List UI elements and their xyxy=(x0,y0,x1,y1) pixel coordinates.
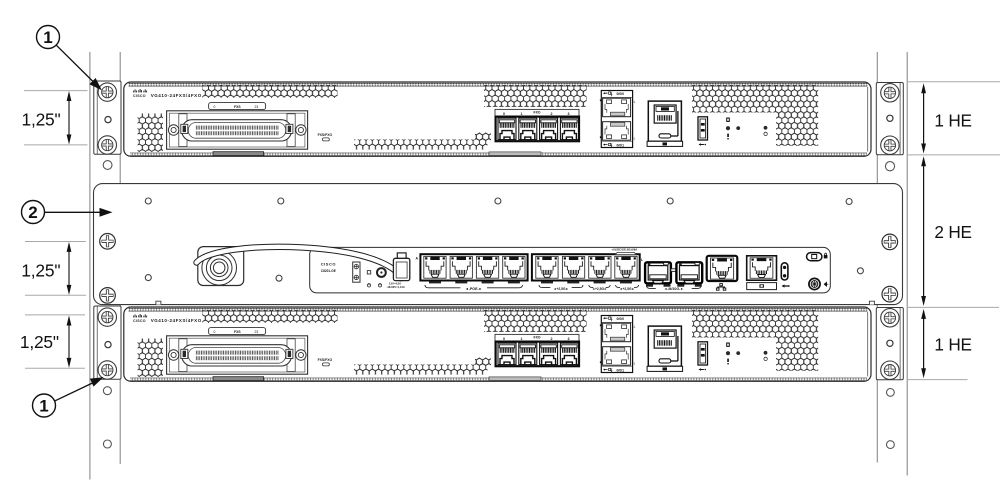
svg-text:L: L xyxy=(641,258,643,262)
svg-text:◄-POE-►: ◄-POE-► xyxy=(465,287,482,291)
svg-text:1,25": 1,25" xyxy=(21,260,60,280)
svg-text:◄+2,5G►: ◄+2,5G► xyxy=(619,287,635,291)
svg-text:-48-60V=1,13A: -48-60V=1,13A xyxy=(387,285,405,289)
svg-text:1,25": 1,25" xyxy=(20,332,59,352)
svg-text:1 HE: 1 HE xyxy=(934,335,971,355)
svg-text:C8201-GE: C8201-GE xyxy=(321,269,336,273)
svg-text:1 HE: 1 HE xyxy=(934,110,971,130)
svg-text:12V=4,5A: 12V=4,5A xyxy=(389,281,401,285)
svg-text:◄+2,5G►: ◄+2,5G► xyxy=(553,287,569,291)
svg-text:2 HE: 2 HE xyxy=(934,222,971,242)
svg-text:1,25": 1,25" xyxy=(21,109,60,129)
svg-text:+5V,DC/GE,0/5,0/6A: +5V,DC/GE,0/5,0/6A xyxy=(612,247,638,251)
svg-text:2: 2 xyxy=(28,203,37,222)
svg-text:1: 1 xyxy=(39,397,48,416)
svg-text:◄+2,5G►: ◄+2,5G► xyxy=(592,287,608,291)
svg-text:1: 1 xyxy=(43,28,52,47)
svg-text:CISCO: CISCO xyxy=(321,261,336,266)
svg-text:◄-M/10G-►: ◄-M/10G-► xyxy=(664,287,684,291)
